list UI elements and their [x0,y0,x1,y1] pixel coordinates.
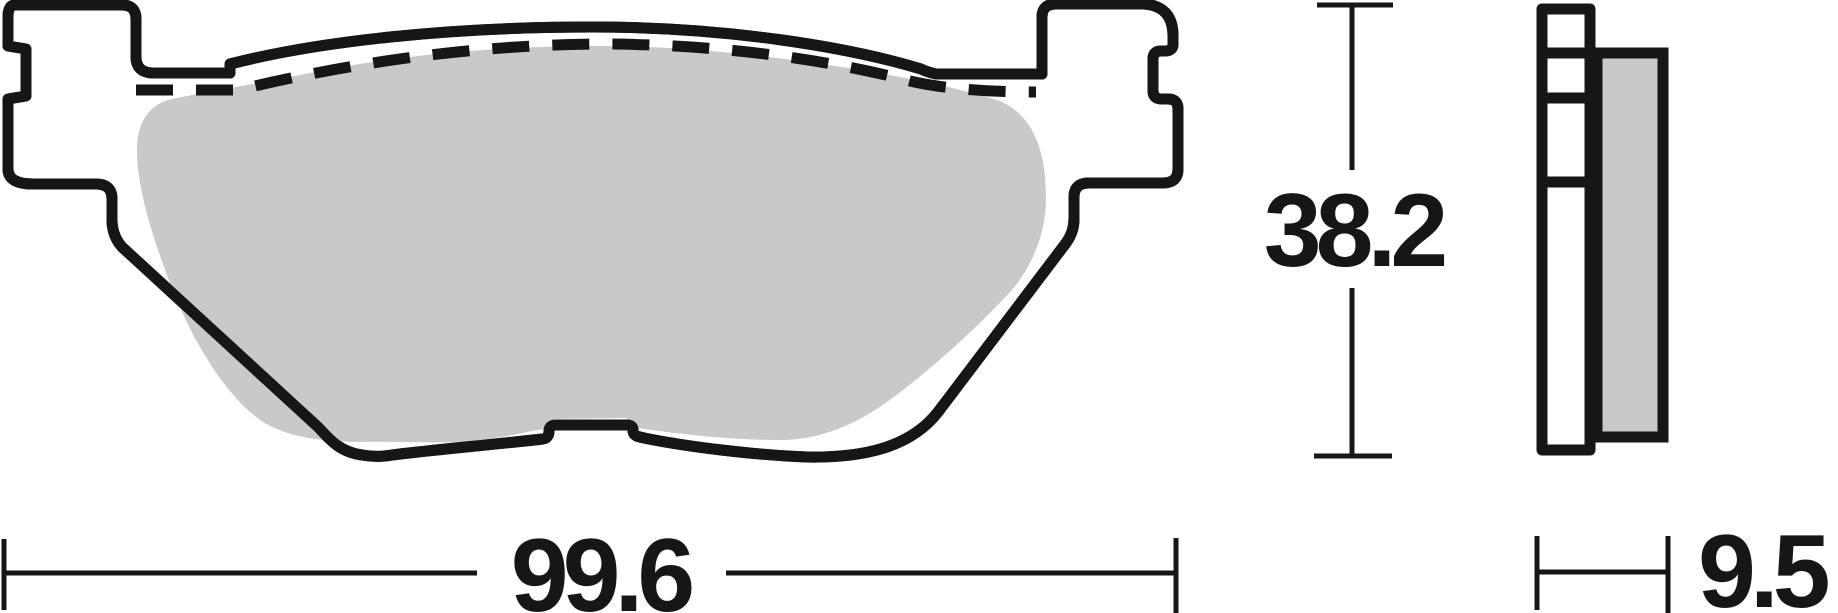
friction-material-side [1597,53,1663,437]
dim-length-value: 99.6 [511,518,693,613]
side-view [1537,9,1663,450]
drawing-canvas: 99.6 38.2 9.5 [0,0,1838,613]
dimension-height: 38.2 [1264,5,1445,456]
brake-pad-technical-drawing: 99.6 38.2 9.5 [0,0,1838,613]
side-backing-plate [1542,9,1590,450]
dimension-thickness: 9.5 [1537,514,1828,613]
front-view [8,4,1178,457]
dim-height-value: 38.2 [1264,173,1445,289]
dim-thickness-value: 9.5 [1698,514,1828,613]
dimension-length: 99.6 [4,518,1176,613]
